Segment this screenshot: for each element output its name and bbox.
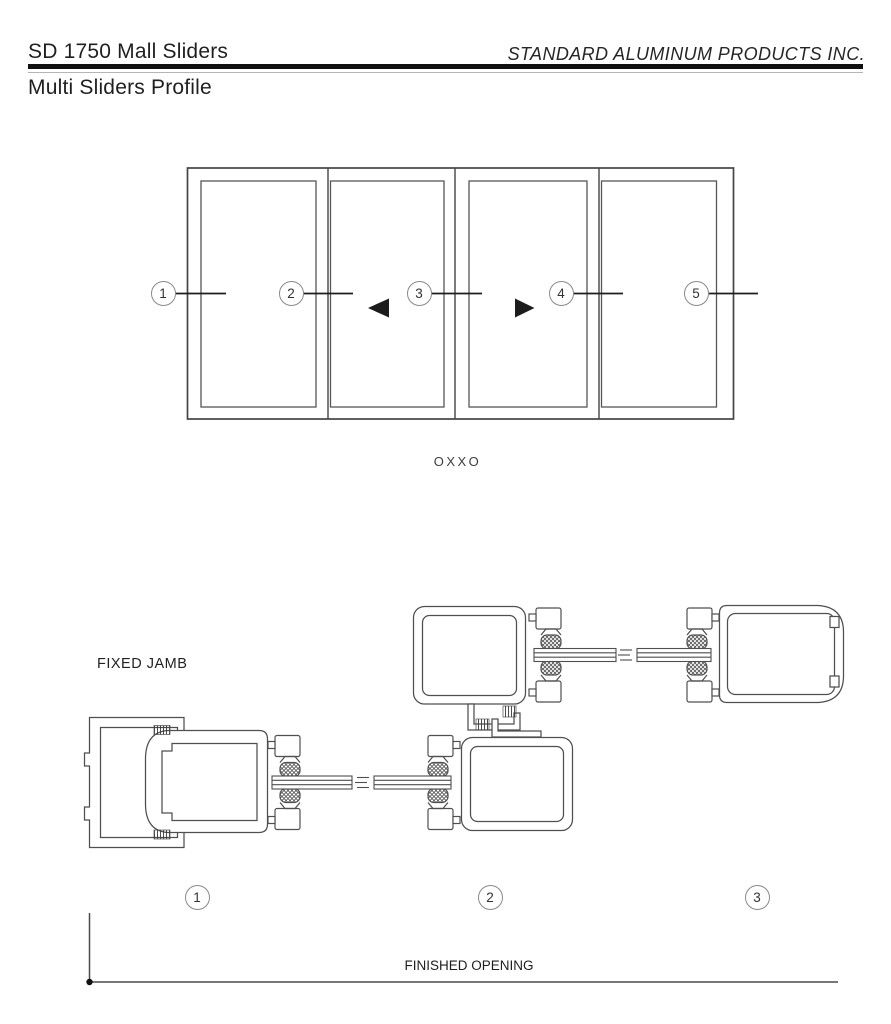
drawing-canvas <box>0 0 891 1024</box>
callout-number: 1 <box>159 286 167 301</box>
section-callout-3: 3 <box>745 885 770 910</box>
elevation-callout-5: 5 <box>684 281 709 306</box>
elevation-callout-4: 4 <box>549 281 574 306</box>
datasheet-page: SD 1750 Mall Sliders STANDARD ALUMINUM P… <box>0 0 891 1024</box>
slide-right-arrow-icon <box>515 299 535 318</box>
callout-number: 2 <box>287 286 295 301</box>
elevation-callout-2: 2 <box>279 281 304 306</box>
callout-number: 3 <box>753 890 761 905</box>
fixed-jamb-label: FIXED JAMB <box>97 656 187 672</box>
section-callout-2: 2 <box>478 885 503 910</box>
config-label: OXXO <box>410 454 505 469</box>
callout-number: 3 <box>415 286 423 301</box>
elevation-callout-3: 3 <box>407 281 432 306</box>
callout-number: 5 <box>692 286 700 301</box>
callout-number: 4 <box>557 286 565 301</box>
dimension-line <box>86 913 838 985</box>
section-profiles <box>85 606 844 848</box>
dimension-label: FINISHED OPENING <box>369 958 569 973</box>
callout-number: 2 <box>486 890 494 905</box>
elevation-callout-1: 1 <box>151 281 176 306</box>
section-callout-1: 1 <box>185 885 210 910</box>
slide-left-arrow-icon <box>368 299 389 318</box>
callout-number: 1 <box>193 890 201 905</box>
